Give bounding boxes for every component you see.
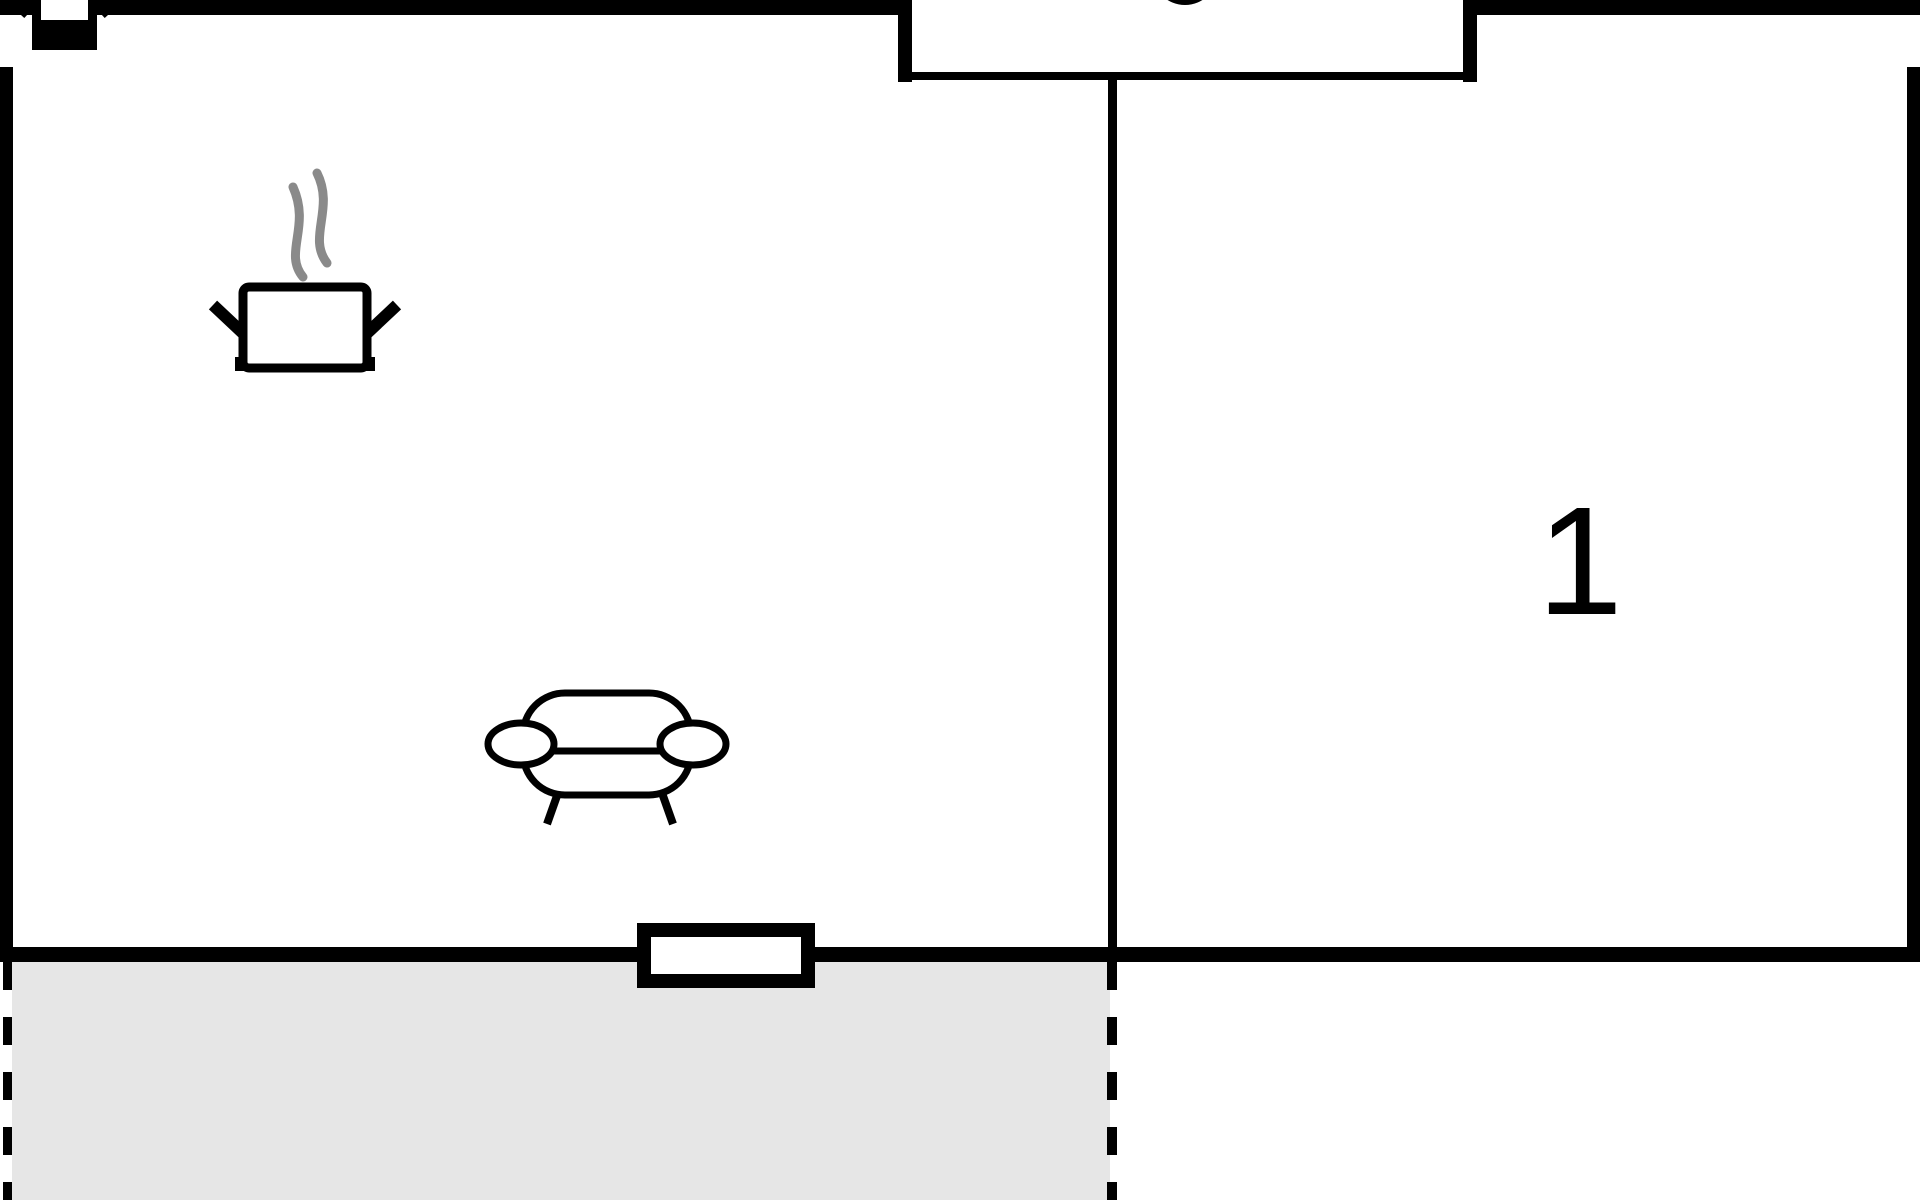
wall-bottom [0, 947, 1920, 962]
wall-top-right [1463, 0, 1920, 15]
terrace-boundary-dashed-right [1107, 962, 1117, 1200]
wall-right [1907, 67, 1920, 962]
wall-room-divider [1108, 80, 1117, 947]
wall-left [0, 67, 13, 962]
cooking-pot-icon [205, 165, 405, 375]
wall-stub-upper-left [898, 0, 912, 82]
floor-plan: 1 [0, 0, 1920, 1200]
wall-interior-top [912, 72, 1463, 80]
wall-stub-upper-right [1463, 0, 1477, 82]
window-marker [637, 923, 815, 988]
sofa-icon [483, 683, 733, 828]
terrace-area [12, 962, 1110, 1200]
room-number-label: 1 [1460, 481, 1700, 641]
circle-bottom-partial-icon [1152, 0, 1218, 5]
steam-icon [293, 173, 327, 277]
terrace-boundary-dashed-left [3, 962, 12, 1200]
wall-top-left [0, 0, 912, 15]
pot-bottom-partial-icon [0, 0, 130, 60]
